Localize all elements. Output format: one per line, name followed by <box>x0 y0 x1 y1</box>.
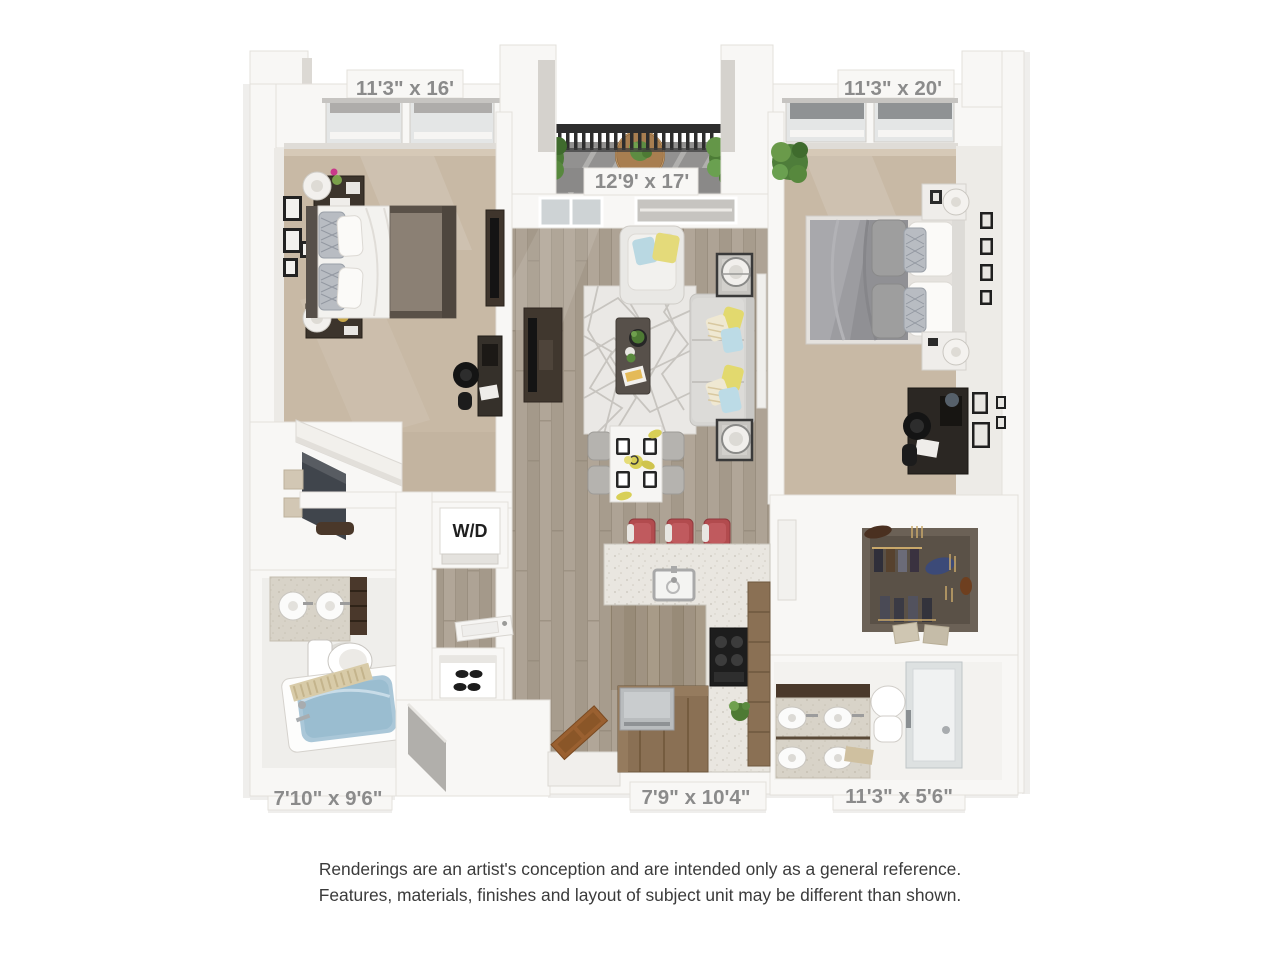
svg-text:7'10" x 9'6": 7'10" x 9'6" <box>274 787 383 810</box>
svg-text:Renderings are an artist's con: Renderings are an artist's conception an… <box>319 859 961 879</box>
svg-text:11'3" x 20': 11'3" x 20' <box>844 77 942 100</box>
svg-text:12'9' x 17': 12'9' x 17' <box>595 170 689 193</box>
svg-text:7'9" x 10'4": 7'9" x 10'4" <box>642 786 751 809</box>
svg-text:W/D: W/D <box>453 521 488 541</box>
svg-text:11'3" x 16': 11'3" x 16' <box>356 77 454 100</box>
svg-text:Features, materials, finishes: Features, materials, finishes and layout… <box>319 885 962 905</box>
svg-text:11'3" x 5'6": 11'3" x 5'6" <box>845 785 953 808</box>
